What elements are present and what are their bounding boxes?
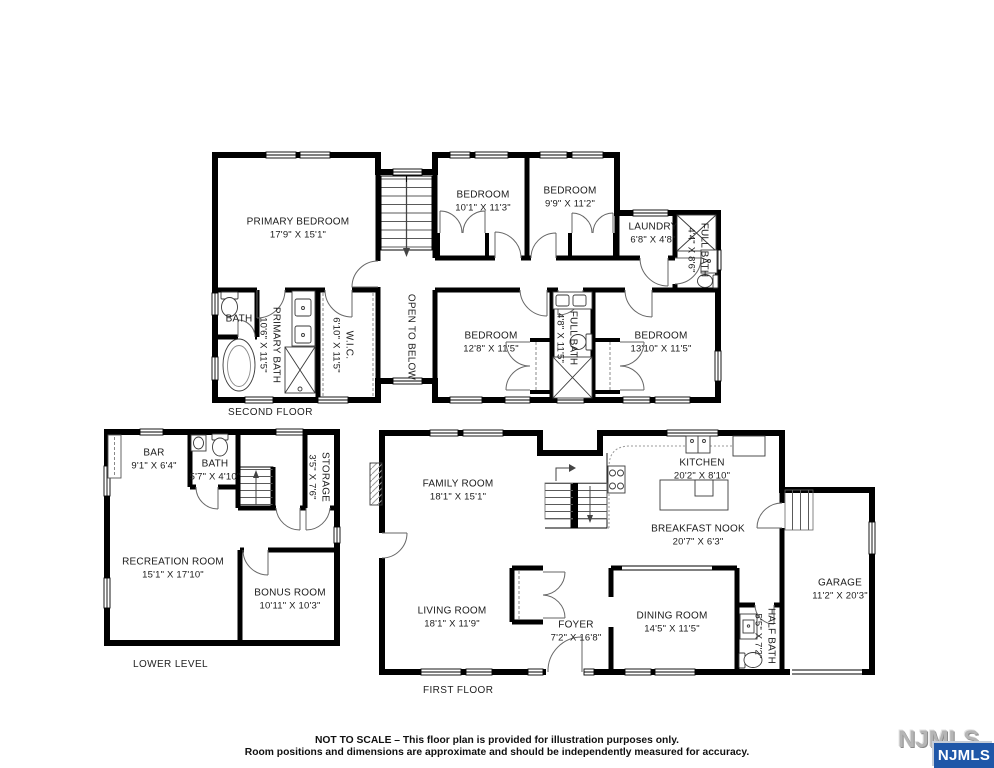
floor-plan-page: { "floors": [ { "label": "SECOND FLOOR",… <box>0 0 994 768</box>
room-label-wic: W.I.C. 6'10" X 11'5" <box>330 317 355 373</box>
room-label-bath: BATH <box>226 314 253 327</box>
open-to-below-label: OPEN TO BELOW <box>404 294 417 380</box>
room-label-primary-bath: PRIMARY BATH 10'6" X 11'5" <box>257 307 282 383</box>
disclaimer-line-2: Room positions and dimensions are approx… <box>0 747 994 759</box>
room-label-living-room: LIVING ROOM 18'1" X 11'9" <box>418 606 487 631</box>
toilet-icon <box>212 434 228 456</box>
lower-level-label: LOWER LEVEL <box>133 659 208 670</box>
room-label-full-bath-lower: FULL BATH 4'8" X 11'5" <box>554 311 579 366</box>
room-label-dining-room: DINING ROOM 14'5" X 11'5" <box>636 611 707 636</box>
fridge-icon <box>733 436 765 456</box>
kitchen-island <box>660 480 728 510</box>
floor-plan-drawing <box>0 0 994 768</box>
njmls-badge-text: NJMLS <box>938 747 990 764</box>
room-label-bedroom-1: BEDROOM 10'1" X 11'3" <box>455 190 511 215</box>
sink-icon <box>191 435 206 451</box>
room-label-bedroom-2: BEDROOM 9'9" X 11'2" <box>543 186 596 211</box>
room-label-breakfast-nook: BREAKFAST NOOK 20'7" X 6'3" <box>651 524 745 549</box>
disclaimer-line-1: NOT TO SCALE – This floor plan is provid… <box>0 735 994 747</box>
room-label-half-bath: HALF BATH 5'5" X 7'2" <box>752 608 777 664</box>
garage-stairs-icon <box>785 490 813 530</box>
stairs-icon <box>240 467 273 508</box>
room-label-recreation-room: RECREATION ROOM 15'1" X 17'10" <box>122 557 224 582</box>
room-label-laundry: LAUNDRY 6'8" X 4'8" <box>628 222 677 247</box>
room-label-foyer: FOYER 7'2" X 16'8" <box>551 620 602 645</box>
njmls-badge: NJMLS <box>934 743 994 768</box>
stairs-icon <box>381 176 432 257</box>
disclaimer: NOT TO SCALE – This floor plan is provid… <box>0 735 994 758</box>
room-label-garage: GARAGE 11'2" X 20'3" <box>812 578 868 603</box>
room-label-lower-bath: BATH 5'7" X 4'10" <box>190 459 241 484</box>
room-label-bedroom-3: BEDROOM 12'8" X 11'5" <box>463 331 519 356</box>
room-label-bar: BAR 9'1" X 6'4" <box>131 448 176 473</box>
first-floor-label: FIRST FLOOR <box>423 685 493 696</box>
range-icon <box>608 466 625 493</box>
room-label-kitchen: KITCHEN 20'2" X 8'10" <box>674 458 730 483</box>
njmls-logo: NJMLS NJMLS <box>884 723 994 768</box>
fireplace-icon <box>370 463 382 505</box>
room-label-family-room: FAMILY ROOM 18'1" X 15'1" <box>423 479 494 504</box>
room-label-primary-bedroom: PRIMARY BEDROOM 17'9" X 15'1" <box>247 217 350 242</box>
room-label-bedroom-4: BEDROOM 13'10" X 11'5" <box>630 331 691 356</box>
shower-icon <box>285 347 315 393</box>
double-vanity-icon <box>553 292 592 309</box>
room-label-storage: STORAGE 3'5" X 7'6" <box>306 452 331 502</box>
bathtub-icon <box>223 339 255 391</box>
double-vanity-icon <box>292 291 315 346</box>
room-label-bonus-room: BONUS ROOM 10'11" X 10'3" <box>254 588 325 613</box>
second-floor-label: SECOND FLOOR <box>228 407 313 418</box>
first-floor-plan <box>370 430 875 676</box>
room-label-full-bath-upper-right: FULL BATH 4'4" X 8'6" <box>685 223 710 278</box>
bar-counter-icon <box>108 435 121 478</box>
kitchen-sink-icon <box>686 436 710 453</box>
